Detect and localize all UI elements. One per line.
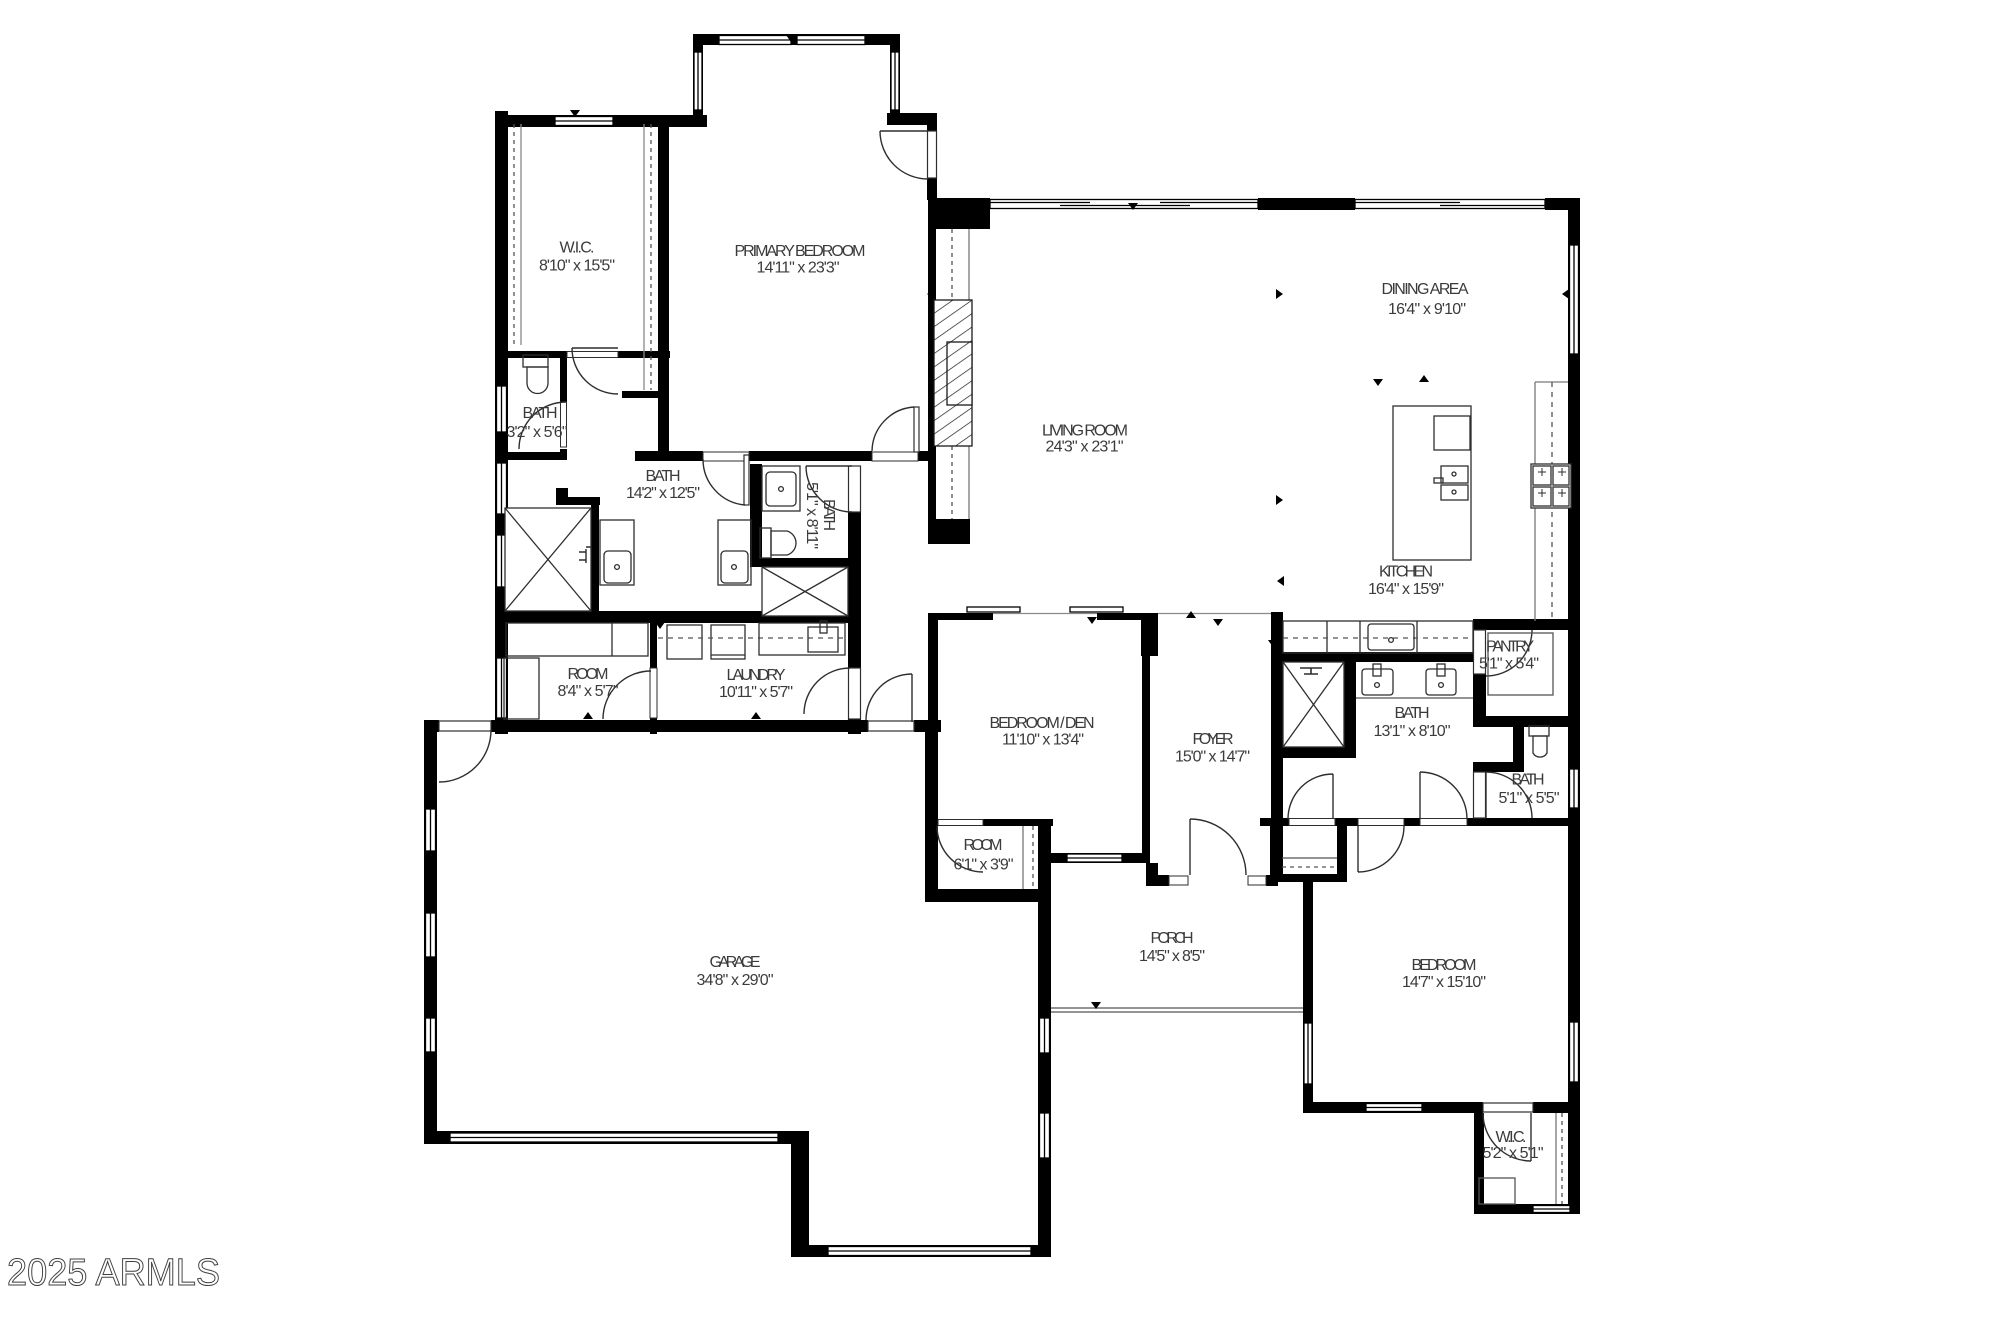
svg-text:BEDROOM / DEN: BEDROOM / DEN	[990, 715, 1095, 732]
svg-text:W.I.C.: W.I.C.	[560, 240, 595, 257]
svg-text:ROOM: ROOM	[964, 837, 1003, 854]
svg-text:PRIMARY BEDROOM: PRIMARY BEDROOM	[735, 243, 866, 260]
svg-text:DINING AREA: DINING AREA	[1382, 281, 1469, 298]
svg-text:GARAGE: GARAGE	[710, 954, 761, 971]
svg-text:8'10" x 15'5": 8'10" x 15'5"	[539, 258, 615, 275]
svg-text:5'1" x 8'11": 5'1" x 8'11"	[803, 482, 820, 549]
svg-text:14'11" x 23'3": 14'11" x 23'3"	[757, 260, 840, 277]
svg-text:BATH: BATH	[1512, 772, 1545, 789]
svg-text:KITCHEN: KITCHEN	[1379, 564, 1433, 581]
svg-text:8'4" x 5'7": 8'4" x 5'7"	[558, 683, 619, 700]
svg-text:14'5" x 8'5": 14'5" x 8'5"	[1139, 948, 1205, 965]
svg-text:10'11" x 5'7": 10'11" x 5'7"	[719, 684, 793, 701]
svg-text:13'1" x 8'10": 13'1" x 8'10"	[1374, 723, 1451, 740]
svg-text:6'1" x 3'9": 6'1" x 3'9"	[954, 857, 1014, 874]
svg-text:BATH: BATH	[820, 499, 837, 531]
svg-text:BATH: BATH	[523, 405, 558, 422]
svg-text:3'2" x 5'6": 3'2" x 5'6"	[507, 424, 568, 441]
svg-text:14'2" x 12'5": 14'2" x 12'5"	[626, 485, 700, 502]
svg-text:PANTRY: PANTRY	[1486, 639, 1534, 656]
svg-text:14'7" x 15'10": 14'7" x 15'10"	[1402, 974, 1486, 991]
svg-text:LAUNDRY: LAUNDRY	[727, 667, 786, 684]
svg-text:LIVING ROOM: LIVING ROOM	[1042, 423, 1128, 440]
svg-text:5'1" x 5'5": 5'1" x 5'5"	[1499, 790, 1560, 807]
svg-text:ROOM: ROOM	[568, 666, 609, 683]
svg-text:24'3" x 23'1": 24'3" x 23'1"	[1046, 439, 1124, 456]
svg-text:16'4" x 15'9": 16'4" x 15'9"	[1368, 581, 1444, 598]
svg-text:11'10" x 13'4": 11'10" x 13'4"	[1002, 732, 1084, 749]
svg-text:BEDROOM: BEDROOM	[1412, 957, 1477, 974]
svg-text:PORCH: PORCH	[1151, 930, 1194, 947]
svg-text:15'0" x 14'7": 15'0" x 14'7"	[1175, 749, 1250, 766]
svg-text:16'4" x 9'10": 16'4" x 9'10"	[1388, 301, 1466, 318]
svg-text:34'8" x 29'0": 34'8" x 29'0"	[697, 972, 774, 989]
svg-text:BATH: BATH	[1395, 705, 1430, 722]
svg-text:W.I.C.: W.I.C.	[1496, 1129, 1527, 1146]
svg-text:5'1" x 5'4": 5'1" x 5'4"	[1479, 656, 1539, 673]
svg-text:5'2" x 5'1": 5'2" x 5'1"	[1483, 1145, 1544, 1162]
svg-text:2025 ARMLS: 2025 ARMLS	[7, 1252, 220, 1294]
svg-text:FOYER: FOYER	[1193, 731, 1234, 748]
svg-text:BATH: BATH	[646, 468, 681, 485]
